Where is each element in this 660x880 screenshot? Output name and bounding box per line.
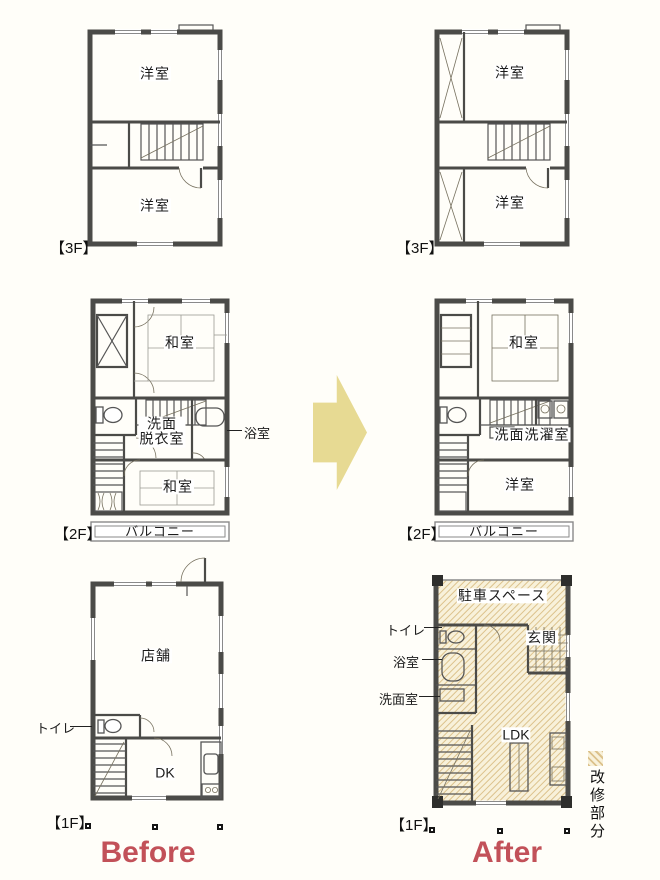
toilet-tank — [440, 407, 447, 423]
room-label-laundry: 洗面洗濯室 — [494, 427, 571, 442]
toilet-tank — [98, 720, 104, 733]
room-label-west-top: 洋室 — [139, 66, 171, 81]
floor-label-before-2f: 【2F】 — [54, 523, 102, 544]
room-label-ldk: LDK — [501, 727, 530, 742]
closet-shelves — [441, 315, 471, 367]
door-arc — [124, 460, 140, 476]
toilet-icon — [105, 720, 121, 733]
marker-square — [217, 824, 223, 830]
door-arc — [134, 307, 154, 327]
closet-x — [97, 315, 127, 367]
toilet-icon — [104, 408, 122, 423]
door-arc — [140, 718, 154, 732]
toilet-room — [93, 715, 154, 738]
toilet-tank — [96, 407, 103, 423]
before-title: Before — [100, 836, 195, 870]
storage-under-stairs — [439, 492, 466, 511]
room-label-washitsu: 和室 — [508, 335, 540, 350]
toilet-room — [437, 398, 480, 435]
washroom-callout-line — [419, 696, 440, 697]
after-1f-plan: 駐車スペース 玄関 LDK — [432, 575, 572, 812]
door-arc — [179, 168, 201, 188]
floor-label-before-3f: 【3F】 — [50, 237, 98, 258]
closet-column — [440, 32, 464, 244]
washroom-label: 洗面室 — [379, 689, 418, 708]
windows — [115, 29, 223, 247]
bath-callout-line — [422, 659, 442, 660]
room-label-washroom: 洗面脱衣室 — [139, 417, 186, 448]
after-title: After — [472, 836, 542, 870]
before-3f-drawing — [85, 22, 225, 254]
room-label-washitsu-bottom: 和室 — [162, 479, 194, 494]
legend-label: 改修部分 — [586, 769, 607, 841]
renovation-hatch-swatch — [588, 751, 603, 766]
after-2f-plan: 和室 洗面洗濯室 洋室 バルコニー — [432, 295, 576, 545]
bathtub-icon — [196, 408, 224, 426]
sink — [204, 754, 218, 774]
windows — [462, 29, 570, 247]
marker-square — [152, 824, 158, 830]
toilet-icon — [448, 408, 466, 423]
floor-label-after-2f: 【2F】 — [398, 523, 446, 544]
room-label-shop: 店舗 — [140, 648, 172, 663]
balcony-label: バルコニー — [468, 525, 540, 539]
after-3f-plan: 洋室 洋室 — [432, 22, 572, 254]
after-3f-drawing — [432, 22, 572, 254]
door-arc — [154, 738, 172, 756]
renovated-area — [436, 580, 568, 803]
after-2f-drawing — [432, 295, 576, 545]
floor-label-after-3f: 【3F】 — [396, 237, 444, 258]
bath-label: 浴室 — [244, 423, 270, 442]
dryer-icon — [554, 401, 568, 418]
toilet-callout-line — [424, 627, 442, 628]
lower-stairs — [93, 435, 124, 513]
room-label-parking: 駐車スペース — [457, 588, 547, 603]
toilet-label: トイレ — [36, 718, 75, 737]
balcony-label: バルコニー — [124, 525, 196, 539]
door-arc — [468, 460, 484, 476]
stairs — [141, 124, 203, 160]
room-label-west: 洋室 — [504, 477, 536, 492]
marker-square — [497, 828, 503, 834]
before-1f-plan: 店舗 DK — [88, 556, 225, 814]
door-arc — [134, 373, 154, 393]
before-after-arrow-icon — [313, 375, 367, 490]
bathroom — [192, 398, 224, 460]
before-2f-plan: 和室 洗面脱衣室 和室 バルコニー — [88, 295, 232, 545]
stairs — [490, 400, 550, 425]
marker-square — [429, 827, 435, 833]
room-label-genkan: 玄関 — [526, 630, 558, 645]
room-label-dk: DK — [154, 765, 175, 780]
bath-callout-line — [227, 430, 242, 431]
toilet-room — [93, 398, 136, 435]
toilet-label: トイレ — [386, 620, 425, 639]
room-label-west-bottom: 洋室 — [494, 195, 526, 210]
stairs — [93, 738, 126, 798]
room-label-west-top: 洋室 — [494, 65, 526, 80]
room-label-washitsu-top: 和室 — [164, 335, 196, 350]
marker-square — [85, 823, 91, 829]
bath-label: 浴室 — [393, 652, 419, 671]
after-1f-drawing — [432, 575, 572, 812]
laundry-units — [536, 398, 568, 425]
marker-square — [564, 828, 570, 834]
lower-stairs — [437, 435, 468, 513]
door-arc — [526, 168, 548, 188]
before-3f-plan: 洋室 洋室 — [85, 22, 225, 254]
room-label-west-bottom: 洋室 — [139, 198, 171, 213]
entry-door — [181, 558, 205, 596]
stairs — [488, 124, 550, 160]
